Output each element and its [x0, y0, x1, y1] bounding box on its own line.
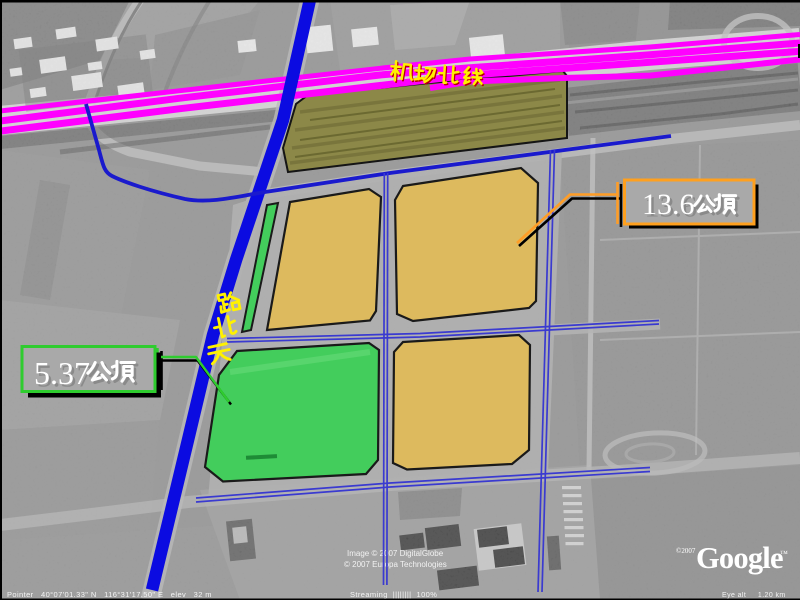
svg-text:Image © 2007 DigitalGlobe: Image © 2007 DigitalGlobe: [347, 549, 444, 558]
svg-text:5.37: 5.37: [34, 355, 90, 391]
svg-text:© 2007 Europa Technologies: © 2007 Europa Technologies: [344, 560, 447, 569]
svg-text:Streaming |||||||| 100%: Streaming |||||||| 100%: [350, 590, 437, 599]
svg-text:Eye alt 1.20 km: Eye alt 1.20 km: [722, 592, 786, 599]
svg-text:©2007: ©2007: [676, 547, 696, 555]
svg-text:™: ™: [780, 549, 788, 558]
svg-text:Google: Google: [696, 541, 783, 575]
svg-text:13.6: 13.6: [642, 188, 695, 221]
svg-text:Pointer 40°07'01.33" N 116: Pointer 40°07'01.33" N 116°31'17.50" E e…: [7, 590, 212, 599]
